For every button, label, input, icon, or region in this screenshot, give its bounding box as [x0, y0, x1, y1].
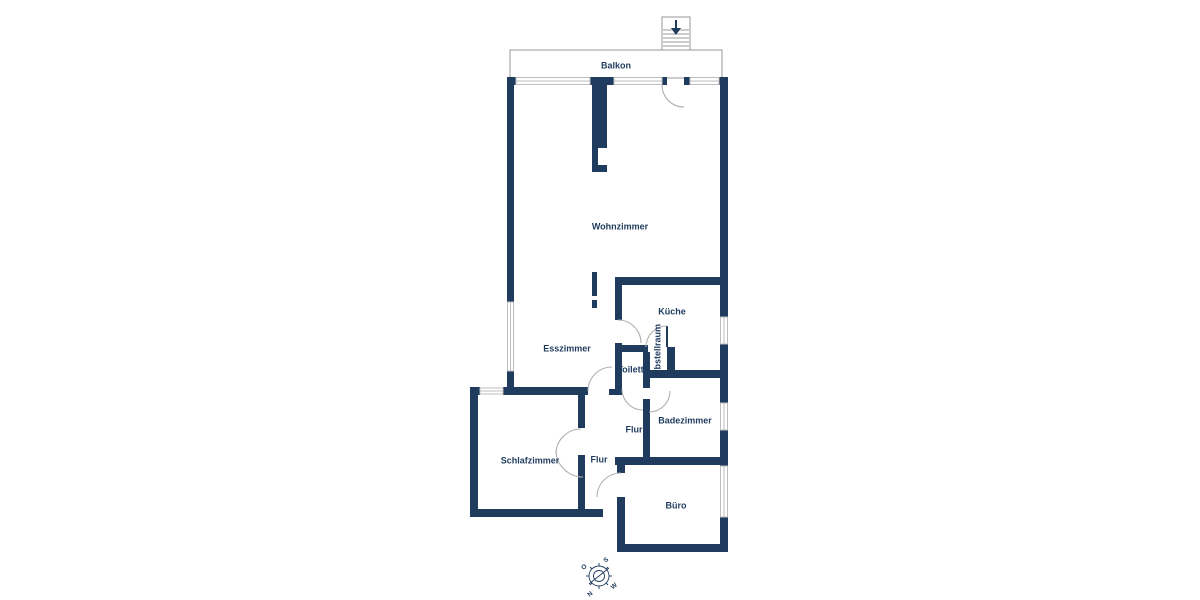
floor-plan-canvas: S O N W Balkon Wohnzimmer Esszimmer Küch…: [0, 0, 1200, 600]
room-label-flur-upper: Flur: [626, 426, 643, 435]
room-label-balkon: Balkon: [601, 62, 631, 71]
compass-north-label: N: [586, 590, 594, 599]
room-label-buero: Büro: [666, 502, 687, 511]
compass-west-label: W: [610, 581, 620, 591]
room-label-flur-lower: Flur: [591, 456, 608, 465]
room-label-schlafzimmer: Schlafzimmer: [501, 457, 560, 466]
compass-rose-icon: S O N W: [580, 556, 619, 599]
compass-south-label: S: [602, 556, 610, 565]
room-label-kueche: Küche: [658, 308, 686, 317]
room-label-toilette: Toilette: [617, 366, 648, 375]
room-label-esszimmer: Esszimmer: [543, 345, 591, 354]
compass-east-label: O: [580, 563, 588, 572]
floor-plan-drawing: S O N W: [0, 0, 1200, 600]
room-label-abstellraum: Abstellraum: [654, 324, 663, 376]
staircase: [662, 17, 690, 50]
room-label-wohnzimmer: Wohnzimmer: [592, 223, 648, 232]
room-label-badezimmer: Badezimmer: [658, 417, 712, 426]
